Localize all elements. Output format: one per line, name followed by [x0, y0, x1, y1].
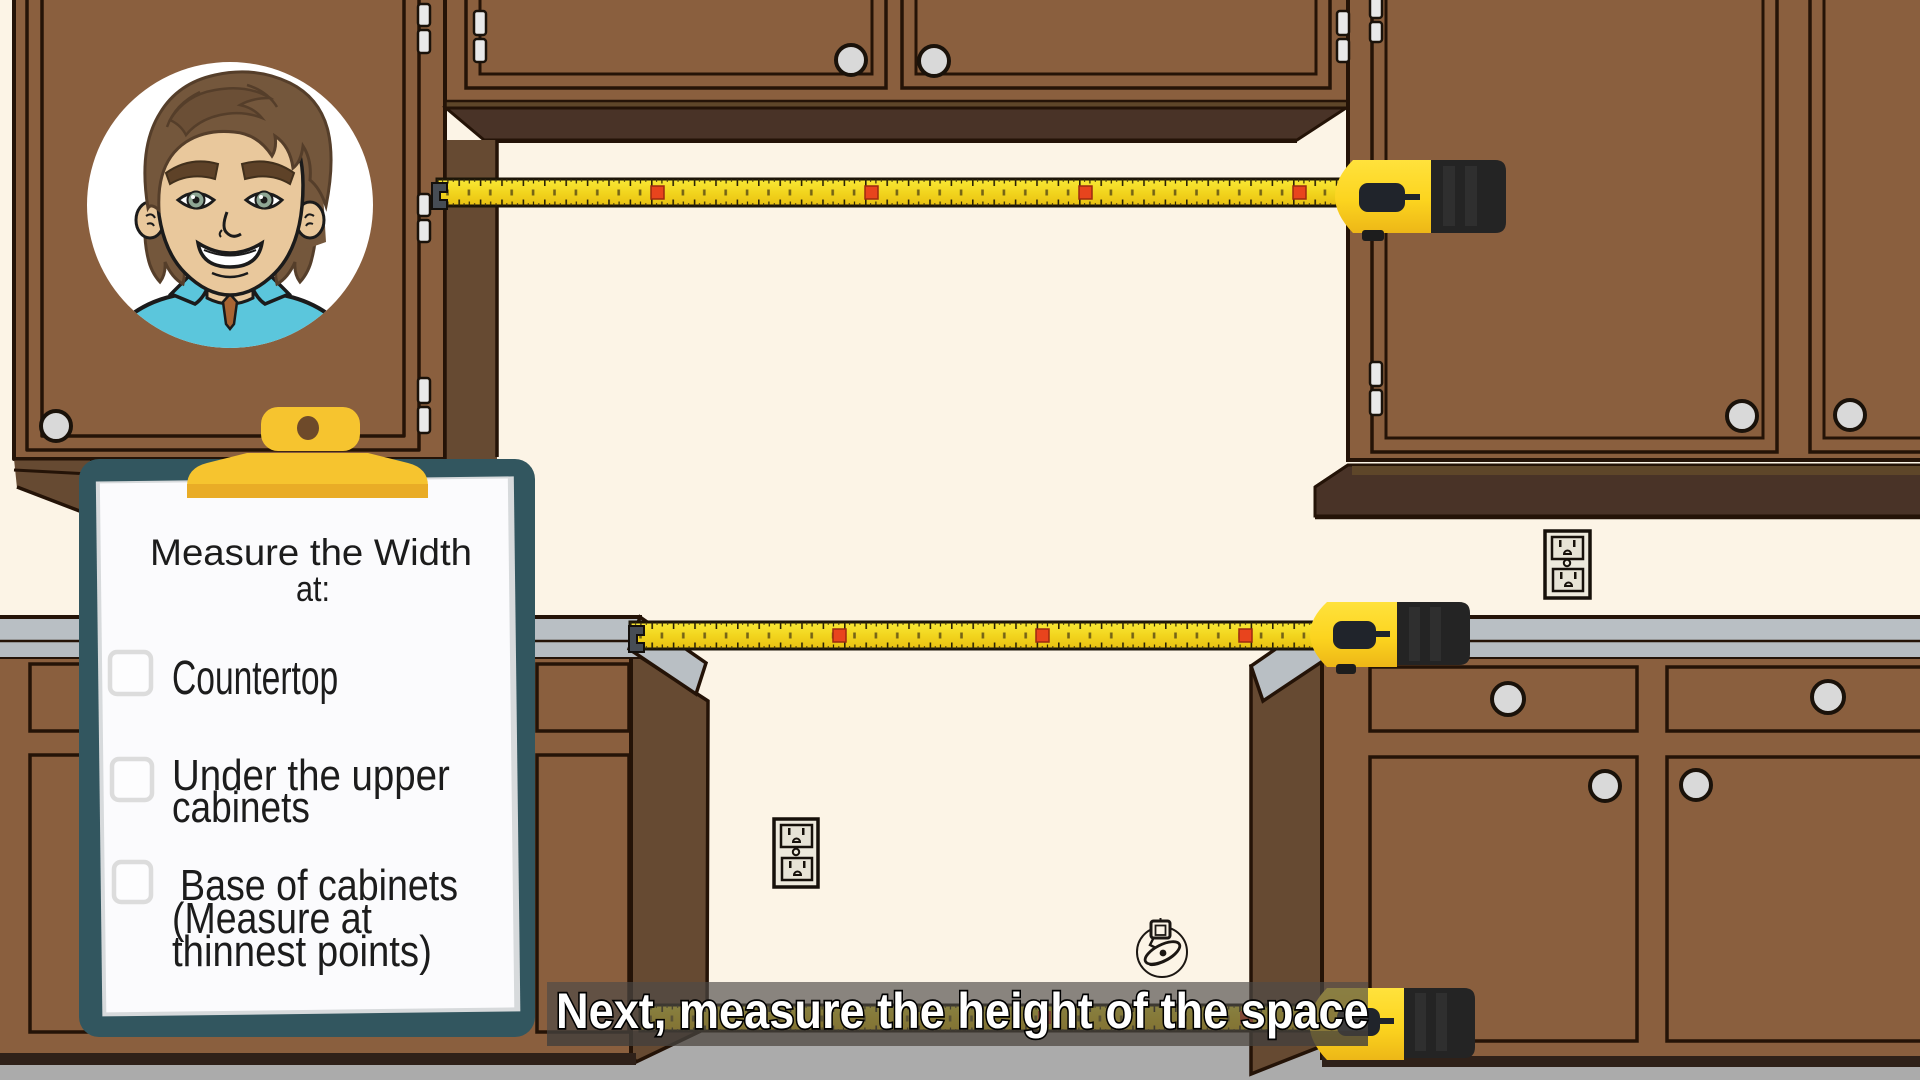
svg-text:Next, measure the height of th: Next, measure the height of the space — [556, 984, 1369, 1040]
svg-text:Measure the Width: Measure the Width — [150, 532, 472, 573]
svg-text:cabinets: cabinets — [172, 782, 310, 832]
svg-text:Countertop: Countertop — [172, 650, 338, 704]
svg-text:at:: at: — [296, 570, 330, 610]
svg-text:thinnest points): thinnest points) — [172, 927, 432, 976]
